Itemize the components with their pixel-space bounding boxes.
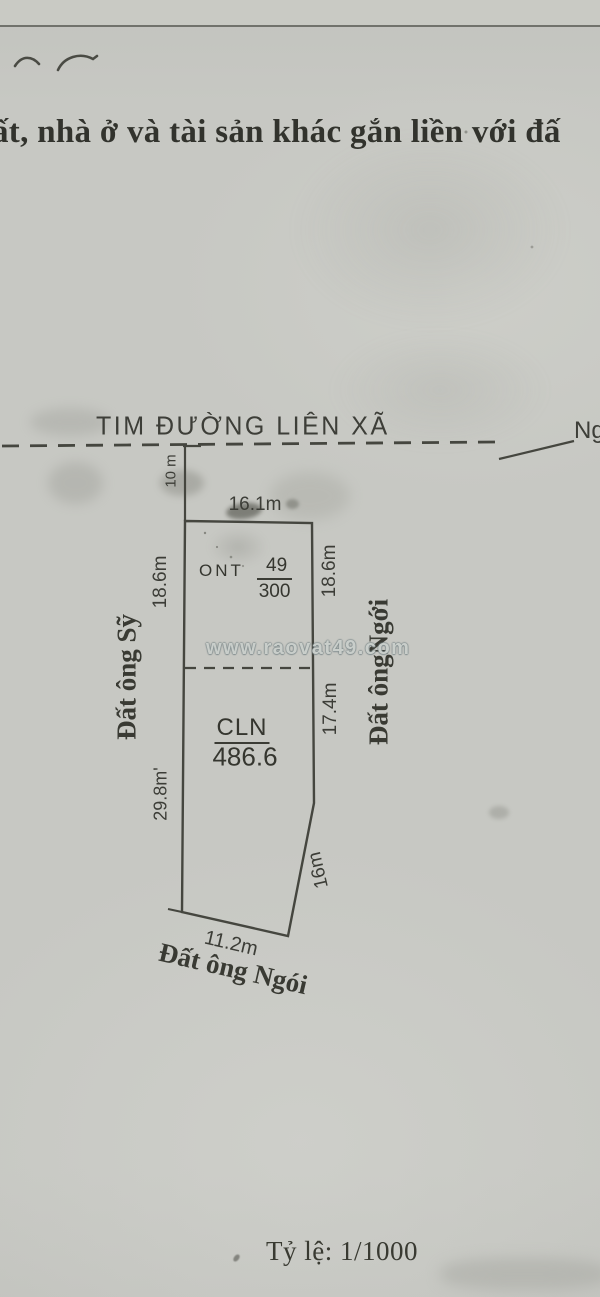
dim-right-upper: 18.6m <box>319 545 341 598</box>
speck <box>230 556 233 559</box>
zone-ont-label: ONT <box>199 561 244 581</box>
zone-ont-map-sheet: 300 <box>257 580 292 603</box>
speck <box>204 532 206 534</box>
watermark-text: www.raovat49.com <box>206 637 410 660</box>
zone-cln-text: CLN <box>214 714 269 744</box>
pen-line <box>499 441 574 459</box>
dim-left-lower: 29.8m' <box>151 767 172 820</box>
pen-mark <box>58 56 97 70</box>
neighbor-right: Đất ôngNgới <box>364 599 395 745</box>
zone-cln-label: CLN <box>214 714 269 742</box>
road-centerline <box>2 442 497 446</box>
pen-mark <box>15 58 39 66</box>
speck <box>216 546 218 548</box>
speck <box>531 246 534 249</box>
zone-ont-fraction: 49 300 <box>257 555 292 603</box>
dim-left-upper: 18.6m <box>150 556 172 609</box>
neighbor-left: Đất ông Sỹ <box>112 614 143 740</box>
dim-setback: 10 m <box>163 454 180 487</box>
map-scale-label: Tỷ lệ: 1/1000 <box>266 1236 418 1267</box>
speck <box>465 131 468 134</box>
dim-right-middle: 17.4m <box>320 683 342 736</box>
dim-top-width: 16.1m <box>229 494 282 516</box>
corner-tick <box>168 909 182 912</box>
zone-ont-lot-number: 49 <box>257 555 292 580</box>
scanned-land-certificate-page: { "header": { "title_fragment": "ất, nhà… <box>0 0 600 1297</box>
zone-cln-area: 486.6 <box>212 742 277 773</box>
